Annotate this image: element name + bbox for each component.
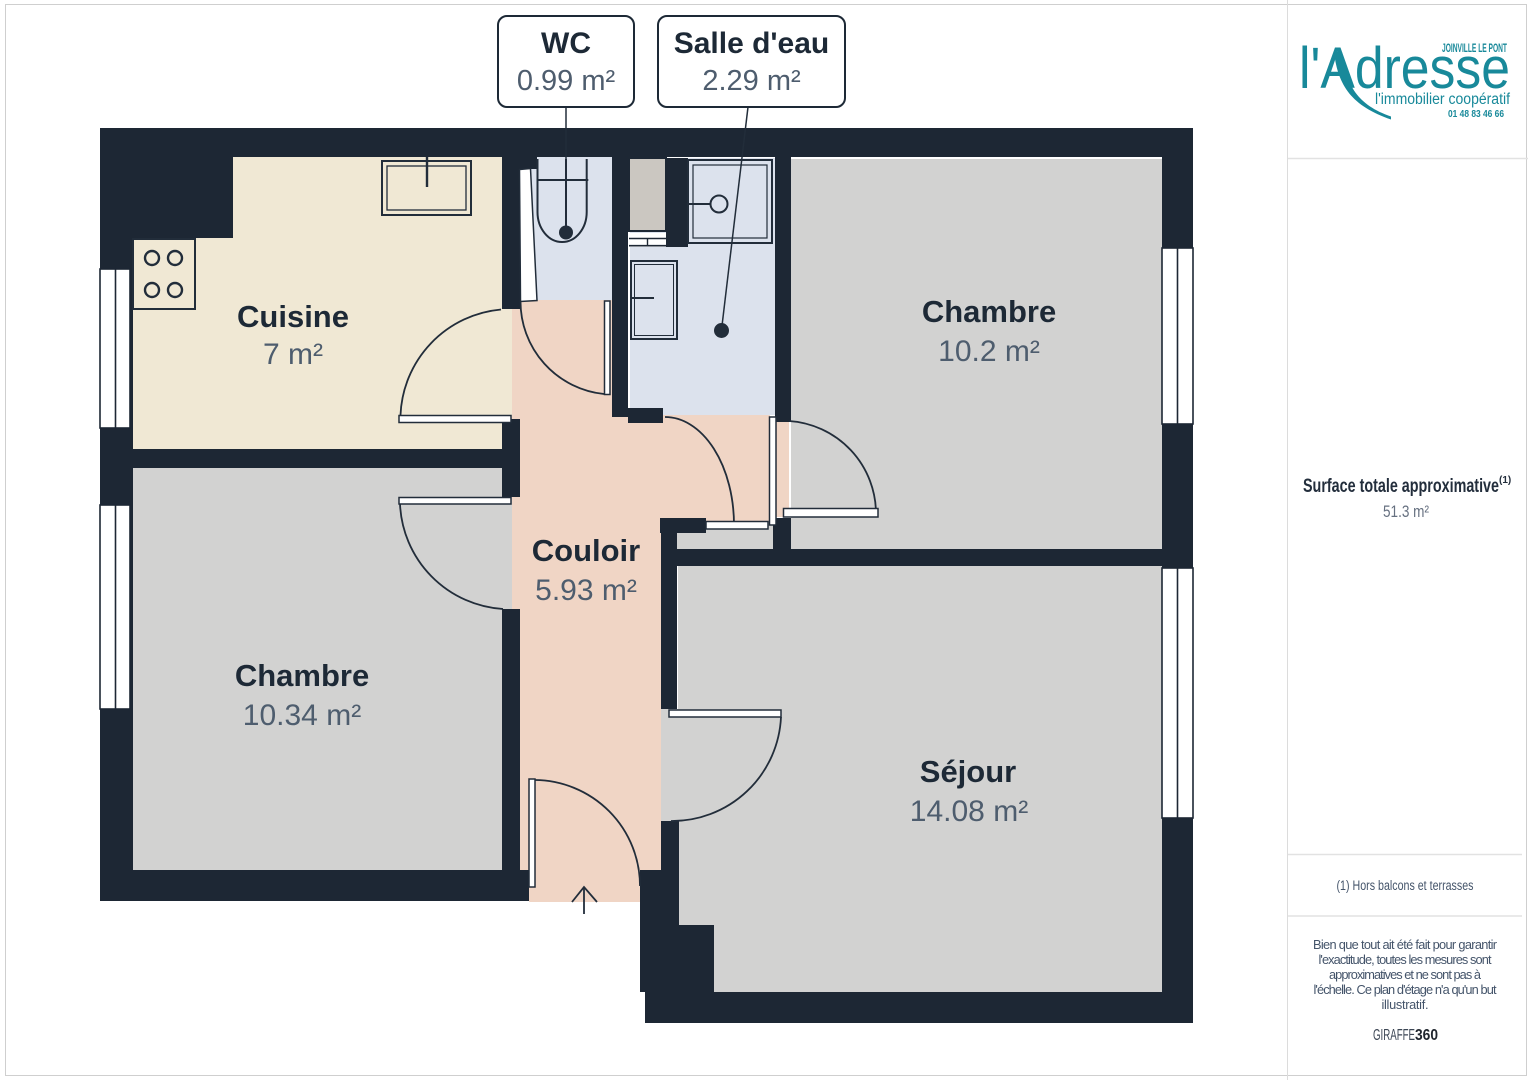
svg-text:10.2 m²: 10.2 m² <box>938 335 1040 368</box>
svg-text:Couloir: Couloir <box>532 533 641 568</box>
svg-text:Surface totale approximative: Surface totale approximative <box>1303 476 1499 497</box>
svg-text:51.3 m²: 51.3 m² <box>1383 503 1429 521</box>
svg-text:l'échelle. Ce plan d'étage n'a: l'échelle. Ce plan d'étage n'a qu'un but <box>1314 982 1497 997</box>
svg-text:5.93 m²: 5.93 m² <box>535 574 637 607</box>
svg-text:Cuisine: Cuisine <box>237 299 349 334</box>
svg-text:Bien que tout ait été fait pou: Bien que tout ait été fait pour garantir <box>1313 937 1498 952</box>
svg-text:2.29 m²: 2.29 m² <box>702 65 801 97</box>
svg-text:14.08 m²: 14.08 m² <box>910 795 1028 828</box>
svg-text:Chambre: Chambre <box>922 294 1056 329</box>
svg-text:Salle d'eau: Salle d'eau <box>674 27 830 60</box>
svg-text:360: 360 <box>1415 1027 1438 1044</box>
svg-text:01 48 83 46 66: 01 48 83 46 66 <box>1448 108 1504 120</box>
svg-text:l'exactitude, toutes les mesur: l'exactitude, toutes les mesures sont <box>1319 952 1492 967</box>
svg-text:Chambre: Chambre <box>235 658 369 693</box>
svg-text:GIRAFFE: GIRAFFE <box>1373 1027 1415 1044</box>
svg-text:0.99 m²: 0.99 m² <box>517 65 616 97</box>
svg-text:approximatives et ne sont pas: approximatives et ne sont pas à <box>1329 967 1482 982</box>
svg-text:l'immobilier coopératif: l'immobilier coopératif <box>1375 91 1511 108</box>
svg-text:10.34 m²: 10.34 m² <box>243 699 361 732</box>
svg-text:(1): (1) <box>1499 475 1511 486</box>
svg-text:7 m²: 7 m² <box>263 338 323 371</box>
svg-text:Séjour: Séjour <box>920 754 1016 789</box>
svg-text:WC: WC <box>541 27 591 60</box>
svg-text:(1) Hors balcons et terrasses: (1) Hors balcons et terrasses <box>1337 878 1474 893</box>
svg-text:illustratif.: illustratif. <box>1382 997 1429 1012</box>
